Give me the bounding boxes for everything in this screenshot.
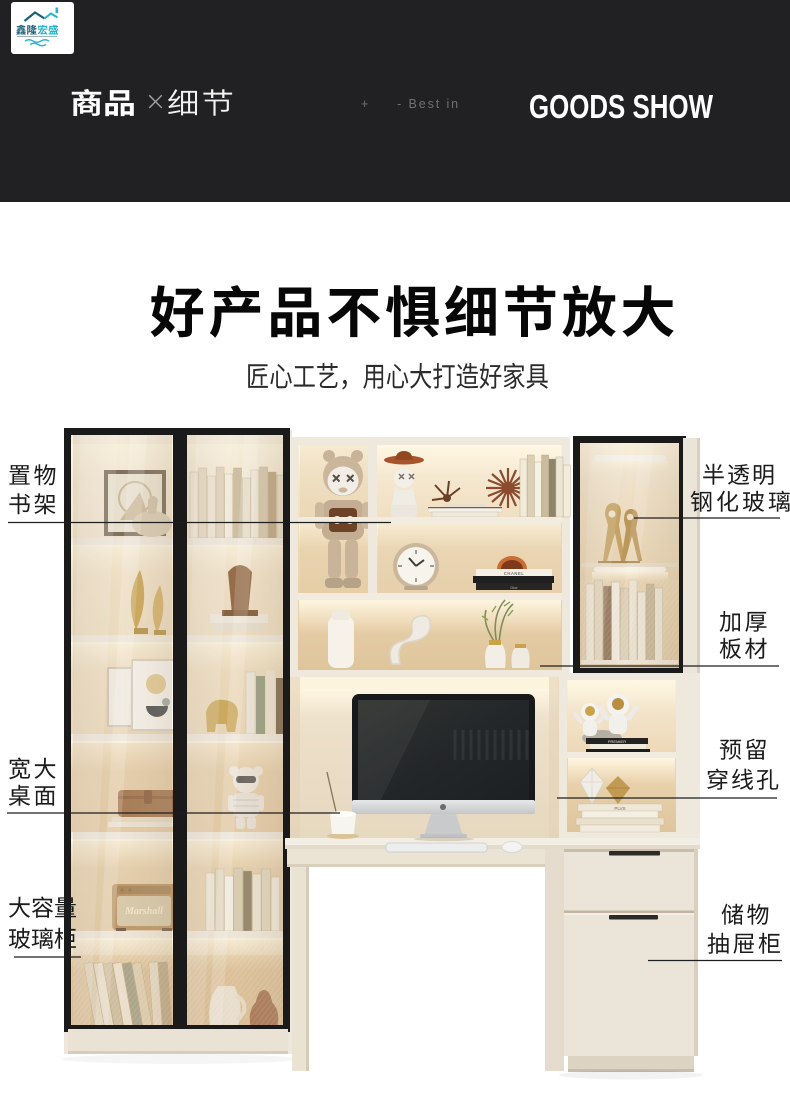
svg-text:GOODS SHOW: GOODS SHOW xyxy=(529,88,714,125)
svg-text:+ - Best in: + - Best in xyxy=(361,97,460,111)
svg-text:PREMIER: PREMIER xyxy=(608,739,626,744)
svg-text:CHANEL: CHANEL xyxy=(504,571,525,576)
svg-text:PLVS: PLVS xyxy=(614,806,625,811)
svg-text:Dior: Dior xyxy=(510,585,518,590)
